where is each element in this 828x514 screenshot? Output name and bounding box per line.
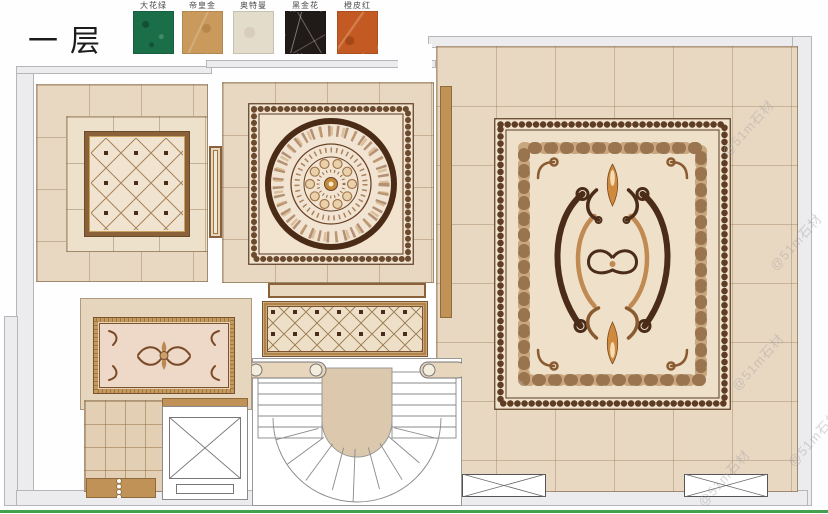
large-medallion <box>494 118 731 410</box>
entry-medallion <box>93 317 235 394</box>
runner-top-strip <box>268 283 426 298</box>
material-swatch-black <box>285 11 326 54</box>
legend-label: 橙皮红 <box>337 0 378 10</box>
legend-item: 奥特曼 <box>233 0 274 54</box>
legend-label: 大花绿 <box>133 0 174 10</box>
wall-left-lower <box>4 316 18 506</box>
material-swatch-gold <box>182 11 223 54</box>
wall-top-left <box>16 66 212 74</box>
floorplan-canvas: 一层 大花绿 帝皇金 奥特曼 黑金花 橙皮红 <box>0 0 828 514</box>
legend-label: 奥特曼 <box>233 0 274 10</box>
baluster-dots <box>112 478 126 498</box>
diamond-lattice-left <box>91 138 183 230</box>
legend-item: 黑金花 <box>285 0 326 54</box>
bottom-green-line <box>0 510 828 513</box>
legend-label: 黑金花 <box>285 0 326 10</box>
legend-item: 橙皮红 <box>337 0 378 54</box>
wall-left <box>16 66 34 506</box>
staircase <box>252 358 462 506</box>
material-swatch-cream <box>233 11 274 54</box>
legend-item: 大花绿 <box>133 0 174 54</box>
legend-label: 帝皇金 <box>182 0 223 10</box>
legend-item: 帝皇金 <box>182 0 223 54</box>
accent-strip-tan <box>440 86 452 318</box>
elevator-door-slot <box>176 484 234 494</box>
material-swatch-red <box>337 11 378 54</box>
threshold-strip <box>209 146 222 238</box>
window-left <box>462 474 546 497</box>
elevator-x-box <box>169 417 241 479</box>
material-swatch-green <box>133 11 174 54</box>
page-title: 一层 <box>28 16 112 60</box>
circular-medallion <box>248 103 414 265</box>
runner-diamond-band <box>262 301 428 357</box>
window-right <box>684 474 768 497</box>
